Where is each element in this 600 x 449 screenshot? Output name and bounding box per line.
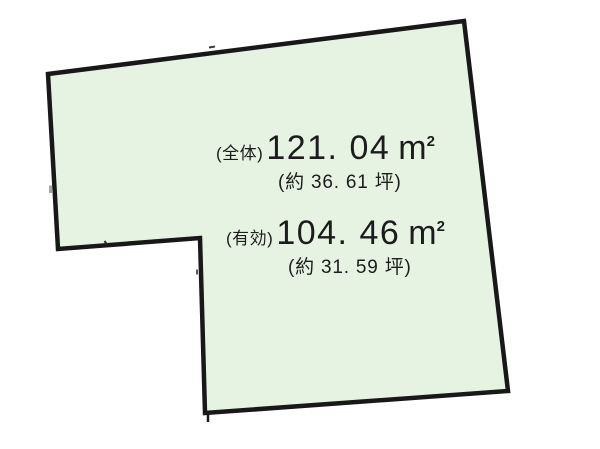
- effective-area-value: 104. 46: [276, 216, 400, 250]
- measurement-total-line: (全体) 121. 04 m2: [216, 131, 435, 171]
- total-area-unit: m2: [398, 131, 435, 165]
- unit-m: m: [408, 214, 436, 252]
- total-label: (全体): [216, 137, 263, 171]
- effective-label: (有効): [226, 222, 273, 256]
- unit-exponent: 2: [427, 133, 435, 150]
- unit-m: m: [398, 129, 426, 167]
- total-tsubo-value: (約 36. 61 坪): [278, 173, 435, 193]
- total-area-value: 121. 04: [266, 131, 390, 165]
- land-diagram: (全体) 121. 04 m2 (約 36. 61 坪) (有効) 104. 4…: [0, 0, 600, 449]
- measurement-total: (全体) 121. 04 m2 (約 36. 61 坪): [216, 131, 435, 193]
- effective-area-unit: m2: [408, 216, 445, 250]
- unit-exponent: 2: [437, 218, 445, 235]
- measurement-effective-line: (有効) 104. 46 m2: [226, 216, 445, 256]
- measurement-effective: (有効) 104. 46 m2 (約 31. 59 坪): [226, 216, 445, 278]
- survey-tick: [209, 47, 215, 48]
- effective-tsubo-value: (約 31. 59 坪): [288, 258, 445, 278]
